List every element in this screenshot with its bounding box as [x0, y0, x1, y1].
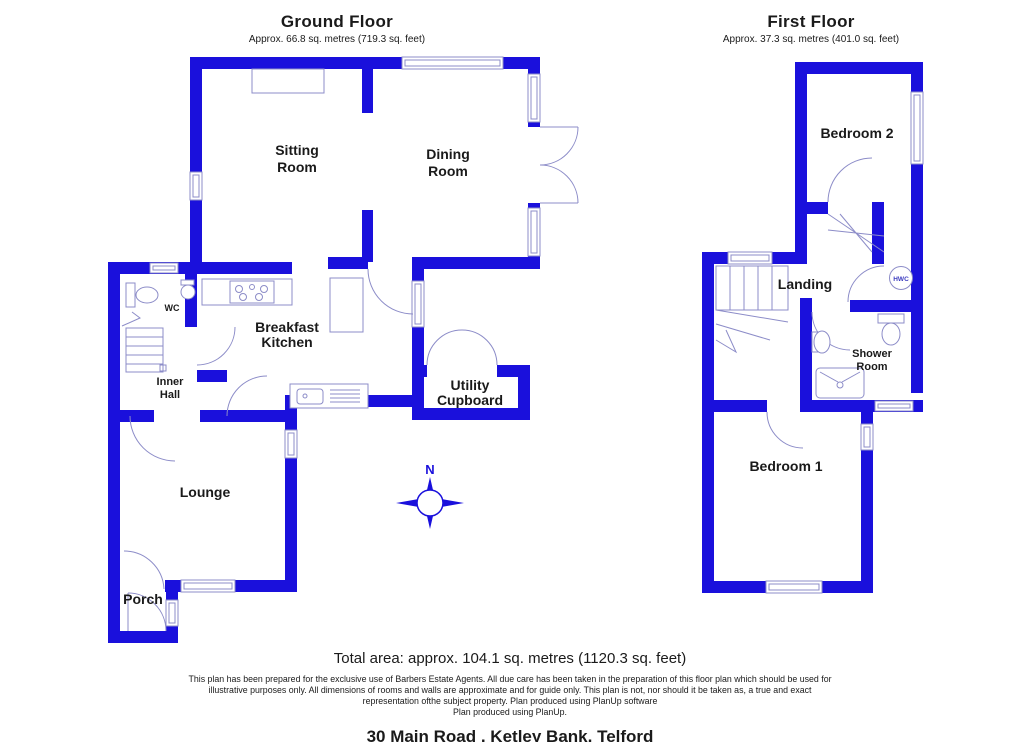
- sitting-room-recess: [252, 69, 324, 93]
- landing-label: Landing: [778, 276, 832, 292]
- bedroom1-label: Bedroom 1: [749, 458, 822, 474]
- dining-room-label-1: Dining: [426, 146, 470, 162]
- wc-basin: [181, 280, 195, 299]
- window-landing-top: [728, 252, 772, 264]
- disclaimer-line-3: representation ofthe subject property. P…: [0, 696, 1020, 707]
- shower-basin: [812, 331, 830, 353]
- first-floor-plan: Bedroom 2 Landing HWC Shower Room Bedroo…: [702, 62, 923, 593]
- window-bedroom1-right: [861, 424, 873, 450]
- hall-stairs: [122, 312, 166, 372]
- door-airing-cupboard: [848, 266, 884, 302]
- window-bedroom1-bottom: [766, 581, 822, 593]
- lounge-label: Lounge: [180, 484, 231, 500]
- window-lounge-bottom: [181, 580, 235, 592]
- window-bedroom2-right: [911, 92, 923, 164]
- utility-cupboard-label-2: Cupboard: [437, 392, 503, 408]
- kitchen-unit: [330, 278, 363, 332]
- shower-room-label-1: Shower: [852, 348, 892, 360]
- window-lounge-right: [285, 430, 297, 458]
- door-wc: [197, 327, 235, 365]
- ground-floor-plan: Sitting Room Dining Room Breakfast Kitch…: [108, 57, 578, 643]
- window-top-dining: [402, 57, 503, 69]
- inner-hall-label-1: Inner: [157, 376, 185, 388]
- breakfast-kitchen-label-1: Breakfast: [255, 319, 319, 335]
- sitting-room-label-1: Sitting: [275, 142, 319, 158]
- door-porch-lounge: [124, 551, 164, 589]
- window-porch-right: [166, 600, 178, 626]
- ground-floor-fixtures: [122, 69, 368, 408]
- disclaimer-line-4: Plan produced using PlanUp.: [0, 707, 1020, 718]
- floorplan-drawing: Sitting Room Dining Room Breakfast Kitch…: [0, 0, 1020, 742]
- disclaimer-line-2: illustrative purposes only. All dimensio…: [0, 685, 1020, 696]
- ground-floor-windows: [150, 57, 540, 626]
- inner-hall-label-2: Hall: [160, 389, 180, 401]
- door-bedroom2: [828, 158, 872, 202]
- disclaimer-line-1: This plan has been prepared for the excl…: [0, 674, 1020, 685]
- shower-room-label-2: Room: [856, 361, 887, 373]
- floorplan-page: Ground Floor Approx. 66.8 sq. metres (71…: [0, 0, 1020, 742]
- breakfast-kitchen-label-2: Kitchen: [261, 334, 312, 350]
- dining-room-label-2: Room: [428, 163, 468, 179]
- shower-toilet: [878, 314, 904, 345]
- ground-floor-labels: Sitting Room Dining Room Breakfast Kitch…: [123, 142, 503, 607]
- double-doors-utility: [427, 330, 497, 365]
- window-shower-bottom: [875, 401, 913, 411]
- ground-floor-walls: [108, 57, 540, 643]
- bedroom2-label: Bedroom 2: [820, 125, 893, 141]
- window-sitting-left: [190, 172, 202, 200]
- door-hall-lounge: [130, 416, 175, 461]
- kitchen-sink: [290, 384, 368, 408]
- compass: N: [396, 462, 464, 529]
- wc-toilet: [126, 283, 158, 307]
- window-kitchen-passage: [412, 281, 424, 327]
- wc-label: WC: [165, 303, 180, 313]
- utility-cupboard-label-1: Utility: [451, 377, 490, 393]
- footer: Total area: approx. 104.1 sq. metres (11…: [0, 650, 1020, 742]
- sitting-room-label-2: Room: [277, 159, 317, 175]
- window-dining-right-1: [528, 74, 540, 122]
- property-address: 30 Main Road , Ketley Bank, Telford: [0, 727, 1020, 742]
- french-doors-dining: [540, 127, 578, 203]
- disclaimer: This plan has been prepared for the excl…: [0, 674, 1020, 718]
- total-area-text: Total area: approx. 104.1 sq. metres (11…: [0, 650, 1020, 667]
- window-wc-top: [150, 263, 178, 273]
- kitchen-hob: [202, 279, 292, 305]
- compass-north-label: N: [425, 462, 434, 477]
- first-floor-labels: Bedroom 2 Landing HWC Shower Room Bedroo…: [749, 125, 909, 474]
- window-dining-right-2: [528, 208, 540, 256]
- door-dining-kitchen: [368, 269, 413, 314]
- porch-label: Porch: [123, 591, 163, 607]
- hwc-label: HWC: [893, 276, 909, 283]
- door-bedroom1: [767, 412, 803, 448]
- compass-circle: [417, 490, 443, 516]
